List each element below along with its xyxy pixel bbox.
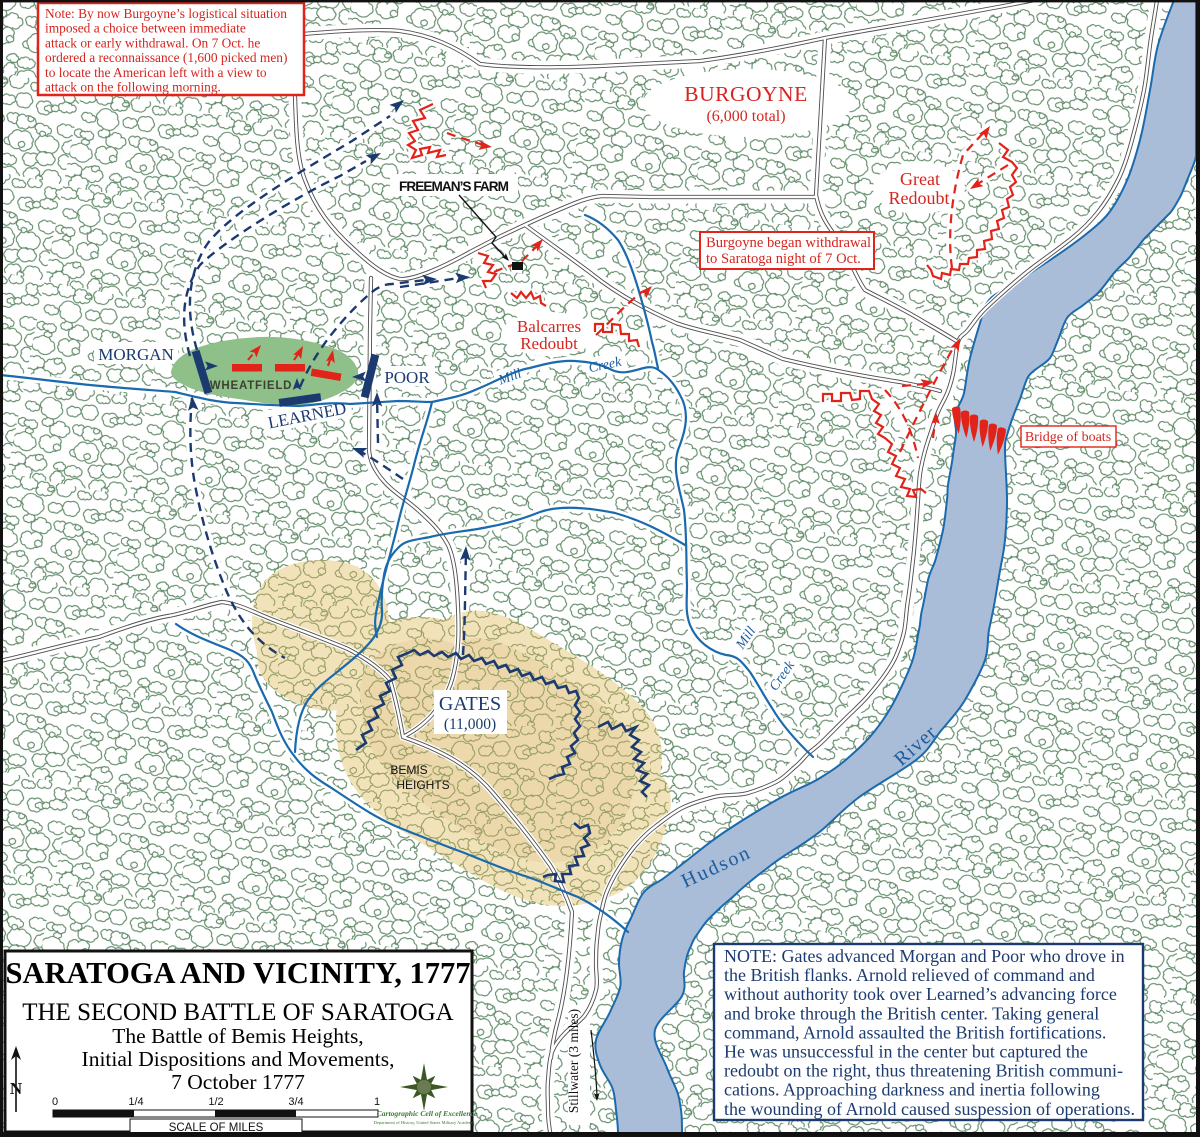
svg-text:Great: Great xyxy=(900,169,940,189)
svg-text:SARATOGA AND VICINITY, 1777: SARATOGA AND VICINITY, 1777 xyxy=(6,956,471,990)
svg-text:command, Arnold assaulted the: command, Arnold assaulted the British fo… xyxy=(724,1022,1106,1042)
svg-text:HEIGHTS: HEIGHTS xyxy=(396,778,449,792)
svg-text:1: 1 xyxy=(374,1096,380,1108)
svg-text:to Saratoga night of 7 Oct.: to Saratoga night of 7 Oct. xyxy=(706,251,861,267)
svg-text:POOR: POOR xyxy=(384,368,430,387)
svg-text:He was unsuccessful in the cen: He was unsuccessful in the center but ca… xyxy=(724,1042,1088,1062)
svg-text:1/2: 1/2 xyxy=(208,1096,223,1108)
svg-text:Bridge of boats: Bridge of boats xyxy=(1025,430,1111,445)
svg-text:Redoubt: Redoubt xyxy=(520,334,578,353)
svg-text:ordered a reconnaissance (1,60: ordered a reconnaissance (1,600 picked m… xyxy=(45,50,287,65)
svg-text:FREEMAN’S FARM: FREEMAN’S FARM xyxy=(399,179,509,194)
svg-text:(11,000): (11,000) xyxy=(444,716,496,733)
svg-text:redoubt on the right, thus thr: redoubt on the right, thus threatening B… xyxy=(724,1061,1123,1081)
svg-text:cations. Approaching darkness: cations. Approaching darkness and inerti… xyxy=(724,1080,1100,1100)
svg-text:1/4: 1/4 xyxy=(128,1096,143,1108)
svg-text:Note: By now Burgoyne’s logist: Note: By now Burgoyne’s logistical situa… xyxy=(45,6,287,21)
svg-text:imposed a choice between immed: imposed a choice between immediate xyxy=(45,21,246,36)
svg-text:BURGOYNE: BURGOYNE xyxy=(684,82,807,106)
svg-text:attack or early withdrawal. O: attack or early withdrawal. On 7 Oct. he xyxy=(45,35,260,50)
svg-text:NOTE: Gates advanced Morgan an: NOTE: Gates advanced Morgan and Poor who… xyxy=(724,946,1125,966)
svg-text:to locate the American left wi: to locate the American left with a view … xyxy=(45,65,267,80)
svg-text:0: 0 xyxy=(52,1096,58,1108)
svg-text:7 October 1777: 7 October 1777 xyxy=(171,1070,305,1094)
svg-text:Stillwater (3 miles): Stillwater (3 miles) xyxy=(566,1009,581,1113)
svg-text:(6,000 total): (6,000 total) xyxy=(706,108,785,125)
svg-text:THE SECOND BATTLE OF SARATOGA: THE SECOND BATTLE OF SARATOGA xyxy=(22,999,454,1026)
svg-text:the wounding of Arnold caused: the wounding of Arnold caused suspession… xyxy=(724,1099,1135,1119)
svg-text:MORGAN: MORGAN xyxy=(98,345,174,364)
svg-text:Cartographic Cell of Excellenc: Cartographic Cell of Excellence xyxy=(377,1109,478,1118)
svg-text:The Battle of Bemis Heights,: The Battle of Bemis Heights, xyxy=(112,1024,363,1048)
svg-text:3/4: 3/4 xyxy=(288,1096,303,1108)
svg-text:N: N xyxy=(10,1079,23,1098)
svg-text:Initial Dispositions and Movem: Initial Dispositions and Movements, xyxy=(82,1047,395,1071)
svg-text:Redoubt: Redoubt xyxy=(889,188,950,208)
svg-text:GATES: GATES xyxy=(439,693,501,715)
svg-text:Burgoyne began withdrawal: Burgoyne began withdrawal xyxy=(706,235,871,251)
svg-text:attack on the following mornin: attack on the following morning. xyxy=(45,80,221,95)
svg-text:without authority took over Le: without authority took over Learned’s ad… xyxy=(724,984,1117,1004)
svg-text:and broke through the British: and broke through the British center. Ta… xyxy=(724,1003,1099,1023)
svg-text:WHEATFIELD: WHEATFIELD xyxy=(210,380,293,392)
svg-text:the British flanks. Arnold re: the British flanks. Arnold relieved of c… xyxy=(724,965,1095,985)
svg-text:BEMIS: BEMIS xyxy=(390,763,427,777)
